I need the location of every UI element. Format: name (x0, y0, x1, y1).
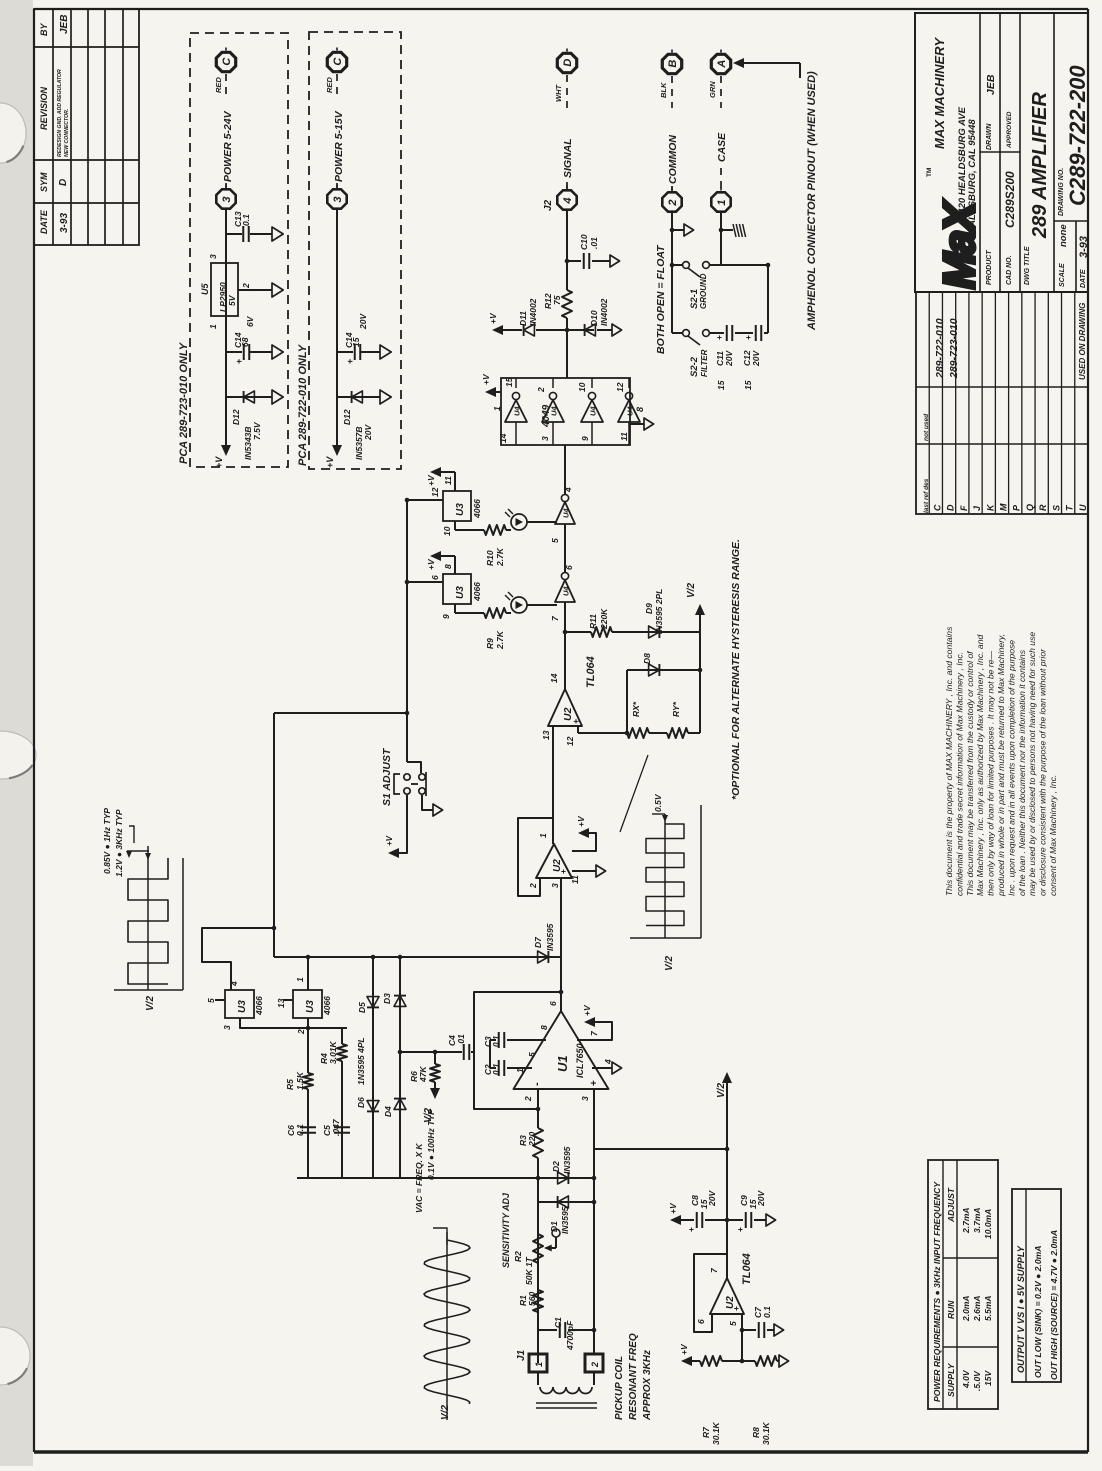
svg-text:7.5V: 7.5V (252, 421, 262, 440)
svg-text:5: 5 (206, 998, 216, 1003)
svg-text:4066: 4066 (254, 996, 264, 1016)
svg-text:8: 8 (443, 564, 453, 569)
svg-text:U3: U3 (305, 1000, 316, 1013)
svg-text:10.0mA: 10.0mA (983, 1209, 993, 1239)
svg-text:3: 3 (222, 1025, 232, 1030)
svg-text:U4: U4 (550, 406, 559, 416)
svg-text:U3: U3 (455, 586, 466, 599)
svg-text:SCALE: SCALE (1059, 263, 1066, 287)
svg-text:TL064: TL064 (585, 656, 597, 688)
svg-text:This document may be trans: This document may be transferred from th… (965, 650, 975, 896)
svg-text:8: 8 (635, 407, 645, 412)
svg-text:4: 4 (562, 198, 574, 205)
svg-text:5: 5 (527, 1052, 537, 1057)
svg-text:U4: U4 (562, 586, 571, 596)
svg-text:2: 2 (296, 1029, 306, 1035)
svg-text:50K 1T: 50K 1T (524, 1256, 534, 1285)
svg-text:IN3595 2PL: IN3595 2PL (654, 589, 664, 634)
svg-text:AMPHENOL CONNECTOR PINOUT (: AMPHENOL CONNECTOR PINOUT (WHEN USED) (806, 71, 818, 331)
svg-text:15: 15 (716, 380, 726, 390)
svg-text:20V: 20V (363, 424, 373, 441)
svg-text:14: 14 (549, 673, 559, 683)
svg-text:2: 2 (523, 1096, 533, 1102)
svg-text:last ref des: last ref des (923, 478, 930, 513)
svg-text:11: 11 (570, 875, 580, 884)
svg-text:+: + (686, 1227, 696, 1232)
svg-text:.5.0V: .5.0V (972, 1370, 982, 1391)
svg-text:2: 2 (241, 283, 251, 289)
svg-text:SYM: SYM (39, 172, 49, 192)
svg-text:IN4002: IN4002 (599, 298, 609, 326)
svg-text:3: 3 (580, 1096, 590, 1101)
svg-text:+V: +V (214, 456, 224, 468)
svg-text:R7: R7 (701, 1426, 711, 1438)
svg-text:BY: BY (39, 23, 49, 36)
svg-text:J1: J1 (516, 1349, 527, 1361)
svg-text:D3: D3 (382, 993, 392, 1004)
svg-text:IN3595: IN3595 (560, 1206, 570, 1234)
svg-text:30.1K: 30.1K (761, 1421, 771, 1445)
svg-text:4066: 4066 (322, 996, 332, 1016)
svg-text:0.1: 0.1 (241, 214, 251, 226)
svg-text:D5: D5 (357, 1002, 367, 1013)
svg-text:PCA 289-722-010 ONLY: PCA 289-722-010 ONLY (297, 343, 309, 466)
svg-text:IN4002: IN4002 (528, 298, 538, 326)
svg-text:PRODUCT: PRODUCT (986, 250, 993, 285)
svg-text:J2: J2 (543, 199, 554, 211)
svg-text:.047: .047 (331, 1118, 341, 1136)
svg-text:2: 2 (667, 200, 679, 207)
svg-text:+V: +V (679, 1343, 689, 1355)
svg-text:D10: D10 (589, 310, 599, 326)
svg-text:DWG TITLE: DWG TITLE (1024, 246, 1031, 285)
svg-text:HEALDSBURG, CAL 95448: HEALDSBURG, CAL 95448 (967, 119, 978, 240)
svg-text:3: 3 (221, 197, 233, 203)
svg-text:2.7K: 2.7K (495, 547, 505, 567)
svg-text:4.0V: 4.0V (961, 1369, 971, 1389)
svg-text:CASE: CASE (716, 132, 728, 162)
svg-text:+: + (345, 359, 355, 364)
svg-text:IN3595: IN3595 (562, 1146, 572, 1174)
svg-text:560: 560 (527, 1292, 537, 1306)
svg-text:C289S200: C289S200 (1003, 171, 1017, 228)
svg-text:REVISION: REVISION (39, 86, 49, 130)
svg-text:confidential and trade secret: confidential and trade secret informatio… (954, 652, 964, 896)
svg-text:6: 6 (564, 565, 574, 570)
svg-text:ADJUST: ADJUST (946, 1187, 956, 1223)
svg-text:Q: Q (1025, 504, 1035, 511)
svg-text:POWER 5-15V: POWER 5-15V (333, 110, 345, 182)
svg-text:+V: +V (668, 1202, 678, 1214)
svg-text:12: 12 (615, 382, 625, 392)
svg-text:D: D (946, 504, 956, 511)
svg-text:D: D (562, 59, 574, 67)
svg-text:BOTH OPEN = FLOAT: BOTH OPEN = FLOAT (655, 244, 667, 354)
svg-text:CAD NO.: CAD NO. (1006, 255, 1013, 285)
svg-text:D8: D8 (642, 653, 652, 664)
svg-text:NEW CONNECTOR.: NEW CONNECTOR. (64, 109, 70, 157)
svg-text:SENSITIVITY ADJ: SENSITIVITY ADJ (501, 1192, 511, 1268)
svg-text:U5: U5 (200, 283, 210, 295)
svg-text:+V: +V (385, 835, 394, 846)
svg-text:4: 4 (563, 487, 573, 493)
svg-text:+V: +V (426, 558, 436, 570)
svg-text:R2: R2 (513, 1251, 523, 1262)
svg-text:4: 4 (229, 981, 239, 987)
svg-text:Max Machinery , Inc. only as a: Max Machinery , Inc. only as authorized … (975, 635, 985, 896)
svg-text:may be used by or disclosed to: may be used by or disclosed to persons n… (1027, 632, 1037, 896)
svg-text:POWER 5-24V: POWER 5-24V (222, 110, 234, 182)
svg-text:R5: R5 (285, 1079, 295, 1090)
svg-text:F: F (959, 505, 969, 511)
svg-text:This document is the property: This document is the property of MAX MAC… (944, 626, 954, 896)
svg-text:20V: 20V (756, 1190, 766, 1207)
svg-text:13: 13 (541, 730, 551, 740)
svg-text:Inc . upon request and in all: Inc . upon request and in all events upo… (1006, 640, 1016, 896)
svg-text:not used: not used (923, 413, 930, 441)
svg-text:M: M (998, 503, 1008, 511)
svg-text:1: 1 (534, 1362, 544, 1367)
svg-text:R9: R9 (485, 638, 495, 649)
svg-text:5: 5 (728, 1321, 738, 1326)
svg-text:R11: R11 (588, 614, 598, 629)
svg-text:0.1V ● 100Hz TYP: 0.1V ● 100Hz TYP (426, 1109, 436, 1180)
svg-text:4066: 4066 (472, 499, 482, 519)
svg-text:RX*: RX* (631, 701, 641, 717)
svg-text:1N3595 4PL: 1N3595 4PL (356, 1037, 366, 1085)
svg-text:C: C (332, 57, 344, 66)
svg-text:DATE: DATE (1080, 269, 1087, 288)
svg-text:10: 10 (442, 526, 452, 536)
svg-text:DATE: DATE (39, 209, 49, 234)
svg-text:5V: 5V (227, 294, 237, 306)
svg-text:+: + (735, 1227, 745, 1232)
svg-text:0.1: 0.1 (491, 1063, 501, 1075)
svg-text:D12: D12 (342, 409, 352, 425)
svg-text:C289-722-200: C289-722-200 (1065, 65, 1090, 206)
svg-text:RY*: RY* (671, 701, 681, 717)
svg-text:then only by way of loan for l: then only by way of loan for limited pur… (986, 651, 996, 896)
svg-text:+V: +V (325, 456, 335, 468)
svg-text:APPROX 3KHz: APPROX 3KHz (642, 1350, 653, 1421)
svg-text:9: 9 (441, 614, 451, 619)
svg-text:D: D (58, 179, 69, 186)
svg-text:9: 9 (580, 436, 590, 441)
svg-text:2: 2 (590, 1362, 600, 1368)
svg-text:DRAWING NO.: DRAWING NO. (1058, 168, 1065, 216)
svg-text:.01: .01 (456, 1034, 466, 1046)
svg-text:+: + (714, 335, 724, 340)
svg-text:PCA 289-723-010 ONLY: PCA 289-723-010 ONLY (178, 341, 190, 464)
svg-text:REDESIGN GND. ADD REGULATOR: REDESIGN GND. ADD REGULATOR (57, 69, 63, 157)
svg-text:POWER REQUIREMENTS ● 3KHz INPU: POWER REQUIREMENTS ● 3KHz INPUT FREQUENC… (932, 1181, 942, 1402)
svg-text:S: S (1051, 505, 1061, 511)
svg-text:+: + (731, 1306, 741, 1311)
svg-text:U3: U3 (237, 1000, 248, 1013)
svg-text:D11: D11 (518, 311, 528, 326)
svg-text:USED ON DRAWING: USED ON DRAWING (1078, 303, 1087, 380)
svg-text:COMMON: COMMON (667, 135, 679, 184)
svg-text:20V: 20V (707, 1190, 717, 1207)
svg-text:14: 14 (498, 433, 508, 443)
svg-text:15: 15 (351, 337, 361, 347)
svg-text:OUTPUT V VS I ● 5V SUPPLY: OUTPUT V VS I ● 5V SUPPLY (1016, 1245, 1026, 1373)
svg-text:B: B (667, 60, 679, 68)
svg-text:1.2V ● 3KHz TYP: 1.2V ● 3KHz TYP (114, 809, 124, 877)
svg-text:RESONANT FREQ: RESONANT FREQ (628, 1333, 639, 1420)
svg-text:3: 3 (332, 197, 344, 203)
svg-text:11: 11 (443, 476, 453, 485)
svg-text:+: + (571, 719, 581, 724)
svg-text:RED: RED (214, 77, 223, 93)
svg-text:WHT: WHT (554, 84, 563, 102)
svg-text:PICKUP COIL: PICKUP COIL (614, 1356, 625, 1420)
svg-text:produced in whole or in part a: produced in whole or in part and must be… (996, 634, 1006, 897)
svg-text:12: 12 (565, 736, 575, 746)
svg-text:1: 1 (538, 833, 548, 838)
svg-text:D12: D12 (231, 409, 241, 425)
svg-text:P: P (1012, 504, 1022, 511)
svg-text:C: C (932, 504, 942, 511)
svg-text:TL064: TL064 (741, 1253, 753, 1285)
svg-text:68: 68 (240, 337, 250, 347)
svg-text:2: 2 (528, 883, 538, 889)
svg-text:1: 1 (716, 200, 728, 206)
svg-text:D7: D7 (533, 936, 543, 948)
svg-text:1: 1 (492, 406, 502, 411)
svg-text:6: 6 (548, 1001, 558, 1006)
svg-text:C10: C10 (579, 234, 589, 250)
svg-text:S2-2: S2-2 (689, 356, 700, 377)
svg-text:0.5V: 0.5V (653, 793, 663, 812)
svg-text:8: 8 (539, 1025, 549, 1030)
svg-text:0.1: 0.1 (295, 1124, 305, 1136)
svg-text:U4: U4 (626, 406, 635, 416)
svg-text:3-93: 3-93 (59, 213, 70, 233)
svg-text:JEB: JEB (985, 74, 997, 95)
svg-text:10: 10 (577, 382, 587, 392)
svg-text:V/2: V/2 (686, 583, 697, 598)
svg-text:V/2: V/2 (716, 1083, 727, 1098)
svg-text:ICL7650: ICL7650 (575, 1043, 585, 1078)
svg-text:5.5mA: 5.5mA (983, 1295, 993, 1321)
svg-text:D4: D4 (383, 1106, 393, 1117)
svg-text:289-723-010: 289-723-010 (948, 318, 960, 379)
svg-text:+: + (234, 359, 244, 364)
svg-text:11: 11 (619, 432, 629, 441)
svg-text:2: 2 (536, 387, 546, 393)
svg-text:D6: D6 (356, 1097, 366, 1108)
svg-text:D9: D9 (644, 603, 654, 614)
svg-text:12: 12 (430, 487, 440, 497)
svg-text:A: A (716, 60, 728, 69)
svg-text:3: 3 (540, 436, 550, 441)
svg-text:SIGNAL: SIGNAL (562, 138, 574, 178)
svg-text:V/2: V/2 (664, 956, 675, 971)
svg-text:3: 3 (550, 883, 560, 888)
svg-text:or disclosure consistent with: or disclosure consistent with the purpos… (1038, 648, 1048, 896)
svg-text:3: 3 (208, 254, 218, 259)
svg-text:30.1K: 30.1K (711, 1421, 721, 1445)
svg-text:-: - (531, 1082, 543, 1086)
svg-text:OUT LOW (SINK) = 0.2V ● 2.0mA: OUT LOW (SINK) = 0.2V ● 2.0mA (1033, 1246, 1043, 1378)
svg-text:20V: 20V (724, 350, 734, 367)
svg-text:2.6mA: 2.6mA (972, 1295, 982, 1322)
svg-text:0.1: 0.1 (491, 1035, 501, 1047)
svg-text:2.0mA: 2.0mA (961, 1295, 971, 1322)
svg-text:.01: .01 (589, 237, 599, 249)
svg-text:15V: 15V (983, 1370, 993, 1386)
svg-text:6V: 6V (245, 315, 255, 327)
svg-text:U4: U4 (562, 508, 571, 518)
svg-text:4700pF: 4700pF (565, 1320, 575, 1351)
svg-text:VAC = FREQ. X K: VAC = FREQ. X K (414, 1143, 424, 1213)
svg-text:15: 15 (504, 377, 514, 387)
svg-text:C: C (221, 57, 233, 66)
svg-text:DRAWN: DRAWN (986, 123, 993, 150)
svg-text:V/2: V/2 (440, 1405, 451, 1420)
svg-text:RED: RED (325, 77, 334, 93)
svg-text:6: 6 (696, 1319, 706, 1324)
svg-text:15: 15 (743, 380, 753, 390)
svg-text:SUPPLY: SUPPLY (946, 1362, 956, 1397)
svg-text:+V: +V (576, 815, 586, 827)
svg-text:BLK: BLK (659, 82, 668, 98)
svg-text:5: 5 (550, 538, 560, 543)
svg-text:47K: 47K (418, 1066, 428, 1083)
svg-text:20V: 20V (751, 350, 761, 367)
svg-text:consent of Max Machinery ,: consent of Max Machinery , Inc. (1048, 775, 1058, 896)
svg-text:+V: +V (426, 474, 436, 486)
svg-text:U4: U4 (513, 406, 522, 416)
svg-text:220: 220 (527, 1132, 537, 1147)
svg-text:+: + (589, 1080, 600, 1086)
svg-text:of the loan . Neither this doc: of the loan . Neither this document nor … (1017, 649, 1027, 896)
svg-text:+V: +V (481, 373, 491, 385)
svg-text:+V: +V (488, 312, 498, 324)
svg-text:JEB: JEB (59, 15, 70, 34)
svg-text:V/2: V/2 (145, 996, 156, 1011)
svg-text:C1: C1 (553, 1317, 563, 1328)
svg-text:2.7K: 2.7K (495, 630, 505, 650)
svg-text:2.7mA: 2.7mA (961, 1207, 971, 1234)
svg-text:U: U (1078, 504, 1088, 511)
svg-text:0.85V ● 1Hz TYP: 0.85V ● 1Hz TYP (102, 808, 112, 874)
svg-text:R8: R8 (751, 1427, 761, 1438)
svg-text:220K: 220K (599, 608, 609, 630)
svg-text:+V: +V (582, 1004, 592, 1016)
svg-text:6: 6 (430, 575, 440, 580)
svg-text:GRN: GRN (708, 81, 717, 98)
svg-text:D2: D2 (551, 1161, 561, 1172)
svg-text:FILTER: FILTER (700, 349, 709, 377)
svg-text:3.01K: 3.01K (328, 1040, 338, 1064)
svg-text:75: 75 (552, 295, 562, 305)
svg-text:1.5K: 1.5K (295, 1071, 305, 1090)
svg-text:+: + (743, 335, 753, 340)
svg-text:289-722-010: 289-722-010 (934, 318, 946, 379)
svg-text:0.1: 0.1 (762, 1306, 772, 1318)
svg-text:4066: 4066 (472, 582, 482, 602)
svg-text:1: 1 (295, 977, 305, 982)
svg-text:U3: U3 (455, 503, 466, 516)
svg-text:*OPTIONAL FOR ALTERNATE HYS: *OPTIONAL FOR ALTERNATE HYSTERESIS RANGE… (730, 539, 742, 800)
svg-text:R: R (1038, 504, 1048, 511)
svg-text:RUN: RUN (946, 1300, 956, 1319)
svg-text:S1 ADJUST: S1 ADJUST (381, 747, 393, 806)
svg-text:289 AMPLIFIER: 289 AMPLIFIER (1029, 91, 1051, 239)
svg-text:R10: R10 (485, 550, 495, 566)
svg-text:none: none (1058, 224, 1069, 247)
svg-text:U4: U4 (589, 406, 598, 416)
svg-text:20V: 20V (358, 313, 368, 330)
svg-text:MAX MACHINERY: MAX MACHINERY (932, 37, 947, 149)
svg-text:GROUND: GROUND (699, 273, 708, 309)
svg-text:TM: TM (926, 168, 933, 177)
svg-text:OUT HIGH (SOURCE) = 4.7V ● 2.0: OUT HIGH (SOURCE) = 4.7V ● 2.0mA (1049, 1230, 1059, 1380)
svg-text:APPROVED: APPROVED (1006, 111, 1013, 149)
svg-text:U1: U1 (555, 1055, 570, 1072)
svg-text:3.7mA: 3.7mA (972, 1207, 982, 1233)
svg-text:3-93: 3-93 (1078, 236, 1090, 258)
svg-text:+: + (558, 869, 568, 874)
svg-text:1: 1 (208, 324, 218, 329)
svg-text:IN3595: IN3595 (545, 923, 555, 951)
